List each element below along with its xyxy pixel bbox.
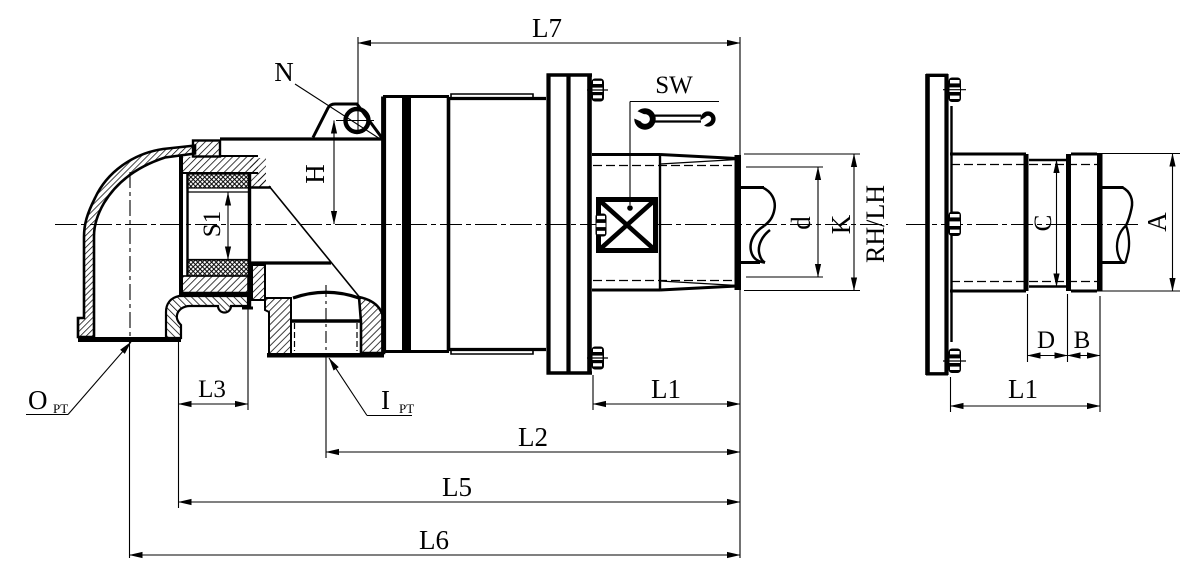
svg-text:L1: L1 xyxy=(651,374,681,404)
svg-text:PT: PT xyxy=(53,401,68,416)
svg-text:I: I xyxy=(381,385,390,415)
svg-text:N: N xyxy=(274,57,294,87)
svg-text:D: D xyxy=(1037,327,1055,354)
svg-text:L7: L7 xyxy=(532,13,562,43)
svg-text:A: A xyxy=(1142,212,1172,232)
svg-text:PT: PT xyxy=(399,401,414,416)
svg-text:K: K xyxy=(826,214,856,234)
svg-text:C: C xyxy=(1030,215,1057,232)
svg-text:L1: L1 xyxy=(1008,374,1038,404)
svg-text:SW: SW xyxy=(655,72,693,99)
svg-text:S1: S1 xyxy=(199,211,226,237)
svg-text:L5: L5 xyxy=(442,472,472,502)
svg-text:RH/LH: RH/LH xyxy=(861,185,890,263)
svg-text:H: H xyxy=(300,164,330,184)
svg-text:L2: L2 xyxy=(518,422,548,452)
svg-text:O: O xyxy=(28,385,48,415)
svg-text:L3: L3 xyxy=(198,376,226,403)
svg-text:d: d xyxy=(786,216,816,230)
svg-text:B: B xyxy=(1074,327,1091,354)
svg-text:L6: L6 xyxy=(419,525,449,555)
